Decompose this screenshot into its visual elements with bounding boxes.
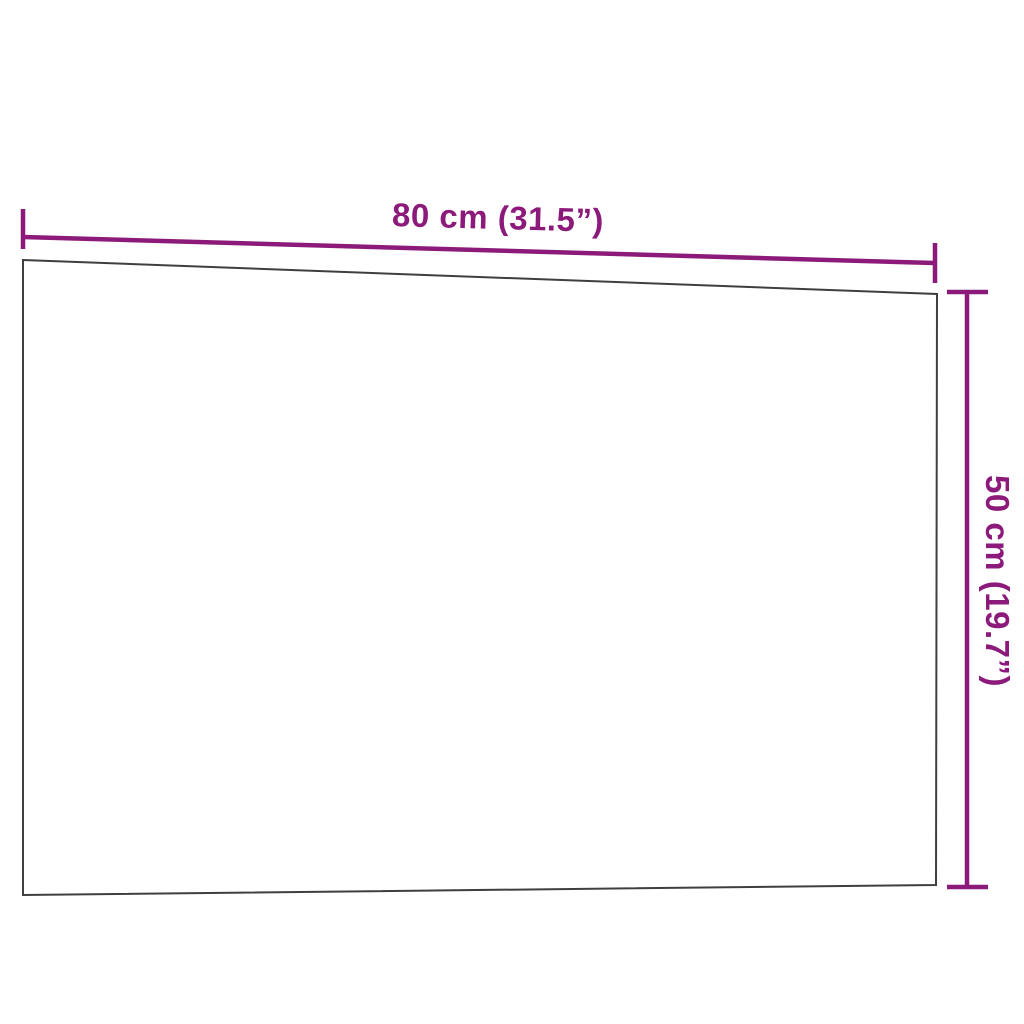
- width-dimension-label: 80 cm (31.5”): [392, 196, 605, 240]
- diagram-canvas: [0, 0, 1024, 1024]
- dimension-diagram: 80 cm (31.5”) 50 cm (19.7”): [0, 0, 1024, 1024]
- board-outline: [23, 260, 937, 895]
- height-dimension-label: 50 cm (19.7”): [978, 475, 1016, 687]
- width-dimension-main-line: [23, 237, 935, 263]
